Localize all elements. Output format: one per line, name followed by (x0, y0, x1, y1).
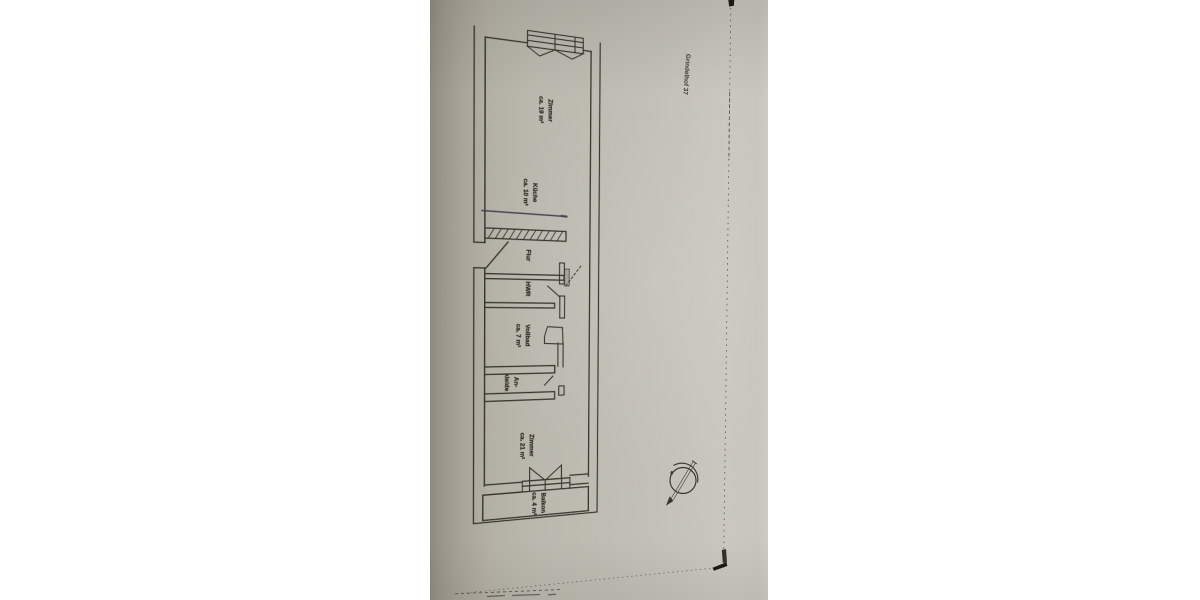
svg-text:Grindelhof 37: Grindelhof 37 (681, 54, 691, 96)
